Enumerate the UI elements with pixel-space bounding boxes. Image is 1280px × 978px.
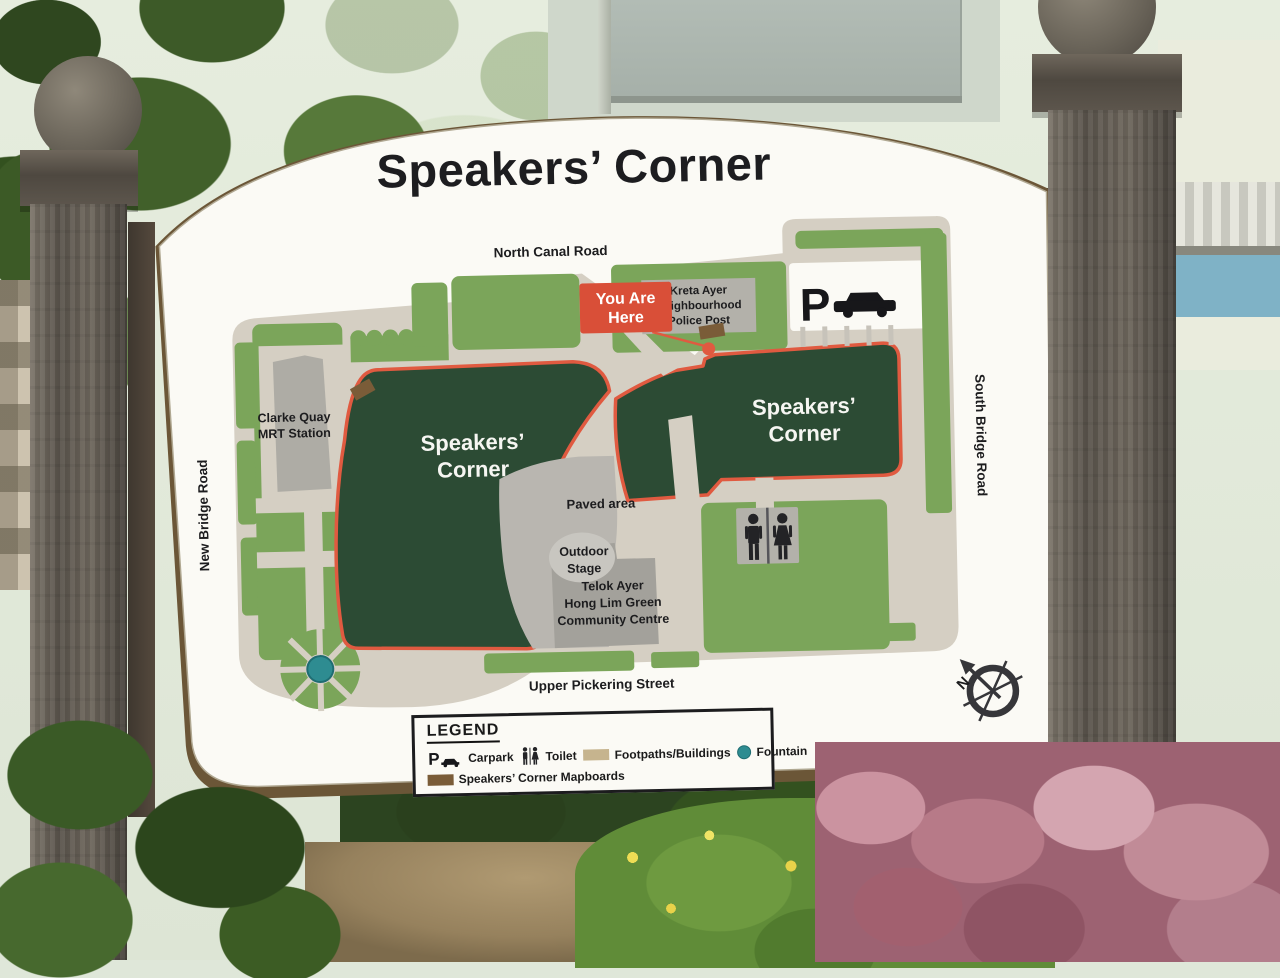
legend-label-toilet: Toilet xyxy=(545,748,576,763)
stage-label: Outdoor xyxy=(559,544,609,559)
police-post-label: Kreta Ayer xyxy=(670,284,728,297)
fountain-icon xyxy=(307,656,334,683)
road-label-south: Upper Pickering Street xyxy=(529,676,675,694)
legend-item-footpaths: Footpaths/Buildings xyxy=(583,745,730,762)
road-label-west: New Bridge Road xyxy=(195,459,212,571)
legend-item-toilet: Toilet xyxy=(520,746,576,766)
legend-heading: LEGEND xyxy=(426,721,499,744)
field-left-label2: Corner xyxy=(437,456,510,483)
carpark-p: P xyxy=(799,278,831,331)
community-centre-label: Telok Ayer xyxy=(581,578,643,593)
road-label-north: North Canal Road xyxy=(493,243,607,260)
legend-label-mapboards: Speakers’ Corner Mapboards xyxy=(458,769,624,786)
mrt-label2: MRT Station xyxy=(258,426,331,442)
stage-label2: Stage xyxy=(567,561,601,576)
field-left-label: Speakers’ xyxy=(420,429,524,456)
community-centre-label2: Hong Lim Green xyxy=(564,595,662,611)
legend-item-mapboards: Speakers’ Corner Mapboards xyxy=(427,769,624,787)
footpath-swatch xyxy=(584,749,610,761)
drain-pipe xyxy=(598,0,611,114)
building-teal-band xyxy=(1158,255,1280,317)
road-label-east: South Bridge Road xyxy=(972,374,990,497)
mrt-label: Clarke Quay xyxy=(257,410,330,426)
paved-area-label: Paved area xyxy=(566,495,636,511)
you-are-here-label: You Are xyxy=(596,290,656,308)
park-map: Clarke Quay MRT Station Speakers’ Corner… xyxy=(150,207,1001,744)
building-panel xyxy=(610,0,962,103)
community-centre-label3: Community Centre xyxy=(557,612,669,628)
pink-shrub xyxy=(815,742,1280,962)
post-left-cap xyxy=(20,150,138,206)
carpark-legend-icon: P xyxy=(427,749,463,768)
post-left-ball xyxy=(34,56,142,164)
legend-item-fountain: Fountain xyxy=(737,743,807,758)
legend-label-fountain: Fountain xyxy=(756,743,807,758)
you-are-here-label2: Here xyxy=(608,309,644,327)
mapboard-swatch xyxy=(428,774,454,786)
corrugated-awning xyxy=(1158,182,1280,255)
svg-text:P: P xyxy=(428,749,440,768)
legend-label-carpark: Carpark xyxy=(468,750,514,765)
field-right-label2: Corner xyxy=(768,420,841,447)
fountain-dot-icon xyxy=(737,745,751,759)
legend-box: LEGEND P Carpark xyxy=(411,708,775,798)
toilet-legend-icon xyxy=(520,746,540,765)
legend-item-carpark: P Carpark xyxy=(427,748,514,768)
foreground-foliage-left xyxy=(0,688,380,978)
legend-label-footpaths: Footpaths/Buildings xyxy=(614,745,730,761)
post-right-cap xyxy=(1032,54,1182,112)
field-right-label: Speakers’ xyxy=(752,393,856,420)
